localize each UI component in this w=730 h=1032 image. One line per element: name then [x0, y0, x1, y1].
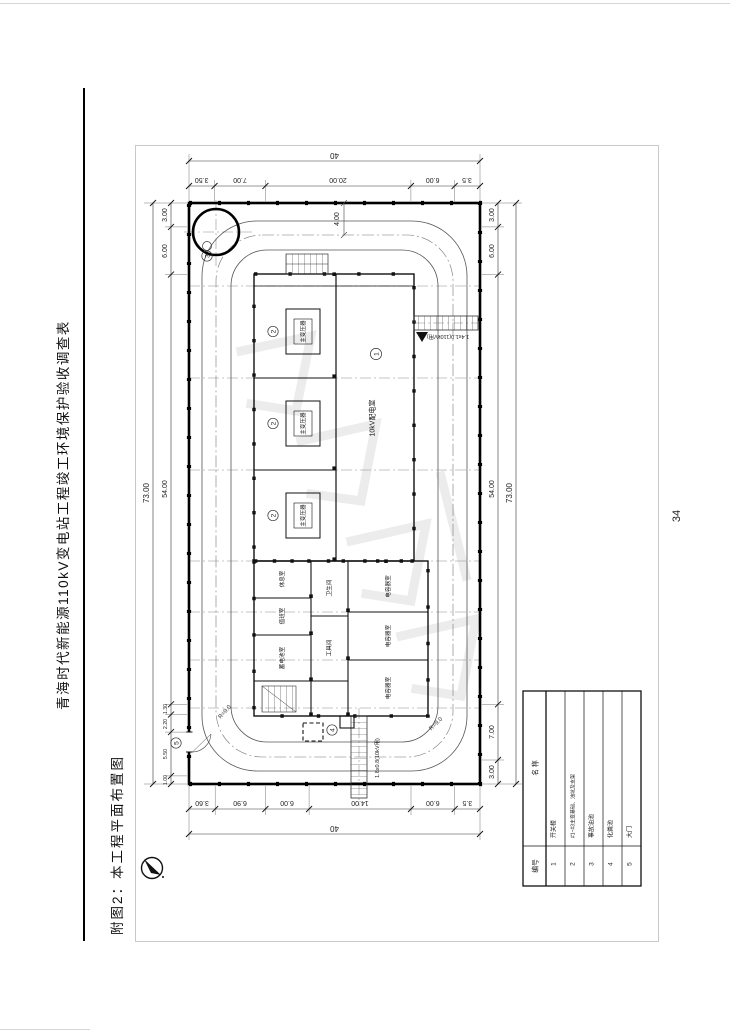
legend-row-3-no: 3 [589, 862, 596, 866]
dim-top-0: 3.50 [195, 176, 209, 183]
legend-row-4-name: 化粪池 [607, 820, 615, 838]
dim-top-1: 7.00 [233, 176, 247, 183]
scan-edge-bottom [0, 1029, 90, 1030]
axis-centerlines [184, 200, 480, 806]
legend-row-4-no: 4 [608, 862, 615, 866]
room-label-2: 值班室 [278, 607, 286, 624]
page-number: 34 [671, 510, 683, 522]
legend-table [523, 691, 641, 886]
site-plan-svg: R=9.0 R=9.0 3 4.00 [136, 146, 658, 941]
dim-top-4: 3.5 [462, 176, 472, 183]
trench-110kv-label: 1.4x1.0(110kV用) [427, 333, 470, 340]
main-gate [186, 732, 212, 752]
marker-2a: 2 [270, 329, 277, 333]
dim-left-4: 2.20 [163, 719, 169, 729]
septic-tank [303, 723, 323, 741]
interior-stairs [262, 686, 296, 712]
capacitor-label-3: 电容器室 [384, 676, 392, 699]
dim-left-1: 6.00 [162, 244, 169, 258]
capacitor-label-2: 电容器室 [384, 624, 392, 647]
dim-bottom-1: 6.90 [233, 799, 247, 806]
scan-edge-top [0, 3, 730, 4]
legend-row-5-name: 大门 [626, 826, 634, 838]
legend-col-no: 编号 [531, 859, 540, 873]
page-header-title: 青海时代新能源110kV变电站工程竣工环境保护验收调查表 [52, 320, 72, 710]
hall-label: 10kV配电室 [368, 400, 377, 437]
dim-right-0: 3.00 [489, 208, 496, 222]
dim-top-2: 20.00 [329, 176, 347, 183]
capacitor-label-1: 电容器室 [384, 575, 392, 598]
transformer-label-2: 主变压器 [299, 412, 307, 435]
dim-right-3: 7.00 [489, 725, 496, 739]
svg-text:4: 4 [329, 728, 336, 732]
dim-top-3: 6.00 [426, 176, 440, 183]
dim-bottom-4: 6.00 [426, 799, 440, 806]
dim-right-total: 73.00 [505, 482, 514, 503]
building-upper-block [254, 274, 414, 561]
marker-4: 4 [327, 725, 337, 735]
dim-bottom-2: 6.00 [280, 799, 294, 806]
svg-text:1: 1 [373, 352, 380, 356]
exterior-stairs [286, 254, 328, 274]
transformer-label-3: 主变压器 [299, 504, 307, 527]
room-label-3: 蓄电池室 [278, 646, 286, 669]
dim-left-5: 5.50 [163, 749, 169, 759]
dim-bottom-3: 14.00 [351, 799, 369, 806]
svg-text:5: 5 [173, 741, 180, 745]
dim-right-4: 3.00 [489, 765, 496, 779]
dim-bottom-0: 3.60 [195, 799, 209, 806]
dim-left-0: 3.00 [162, 208, 169, 222]
marker-5: 5 [171, 738, 181, 748]
dim-right-2: 54.00 [489, 480, 496, 498]
dim-left-total: 73.00 [142, 482, 151, 503]
legend-col-name: 名 称 [531, 760, 540, 776]
dim-left-6: 1.00 [163, 775, 169, 785]
figure-caption: 附图2：本工程平面布置图 [106, 755, 126, 935]
marker-1: 1 [370, 348, 381, 359]
legend-row-1-no: 1 [551, 862, 558, 866]
room-label-5: 工具间 [325, 639, 333, 656]
dim-left-2: 54.00 [162, 480, 169, 498]
room-label-4: 卫生间 [325, 579, 333, 596]
marker-2b: 2 [270, 421, 277, 425]
road-width-label: 4.00 [334, 212, 341, 226]
road-radius-right: R=9.0 [428, 716, 444, 732]
dim-left-3: 1.30 [163, 704, 169, 714]
legend-row-2-name: #1~#3主变基础、油坑及支架 [570, 774, 577, 838]
svg-text:3: 3 [204, 254, 211, 258]
legend-row-5-no: 5 [627, 862, 634, 866]
dim-right-1: 6.00 [489, 244, 496, 258]
marker-2c: 2 [270, 513, 277, 517]
legend-row-1-name: 开关楼 [550, 820, 558, 838]
header-rule [83, 88, 85, 941]
room-label-1: 休息室 [278, 570, 286, 587]
site-plan-figure: R=9.0 R=9.0 3 4.00 [135, 145, 659, 942]
legend-row-2-no: 2 [570, 862, 577, 866]
building-posts [254, 274, 414, 561]
dim-bottom-total: 40 [330, 824, 339, 833]
north-arrow-icon [142, 858, 165, 879]
road-width-dim [341, 200, 347, 238]
dim-bottom-5: 3.5 [462, 799, 472, 806]
trench-10kv-label: 1.8x0.8(10kV用) [374, 738, 381, 778]
transformer-label-1: 主变压器 [299, 320, 307, 343]
dim-top-total: 40 [330, 151, 339, 160]
legend-row-3-name: 事故油池 [588, 814, 596, 838]
